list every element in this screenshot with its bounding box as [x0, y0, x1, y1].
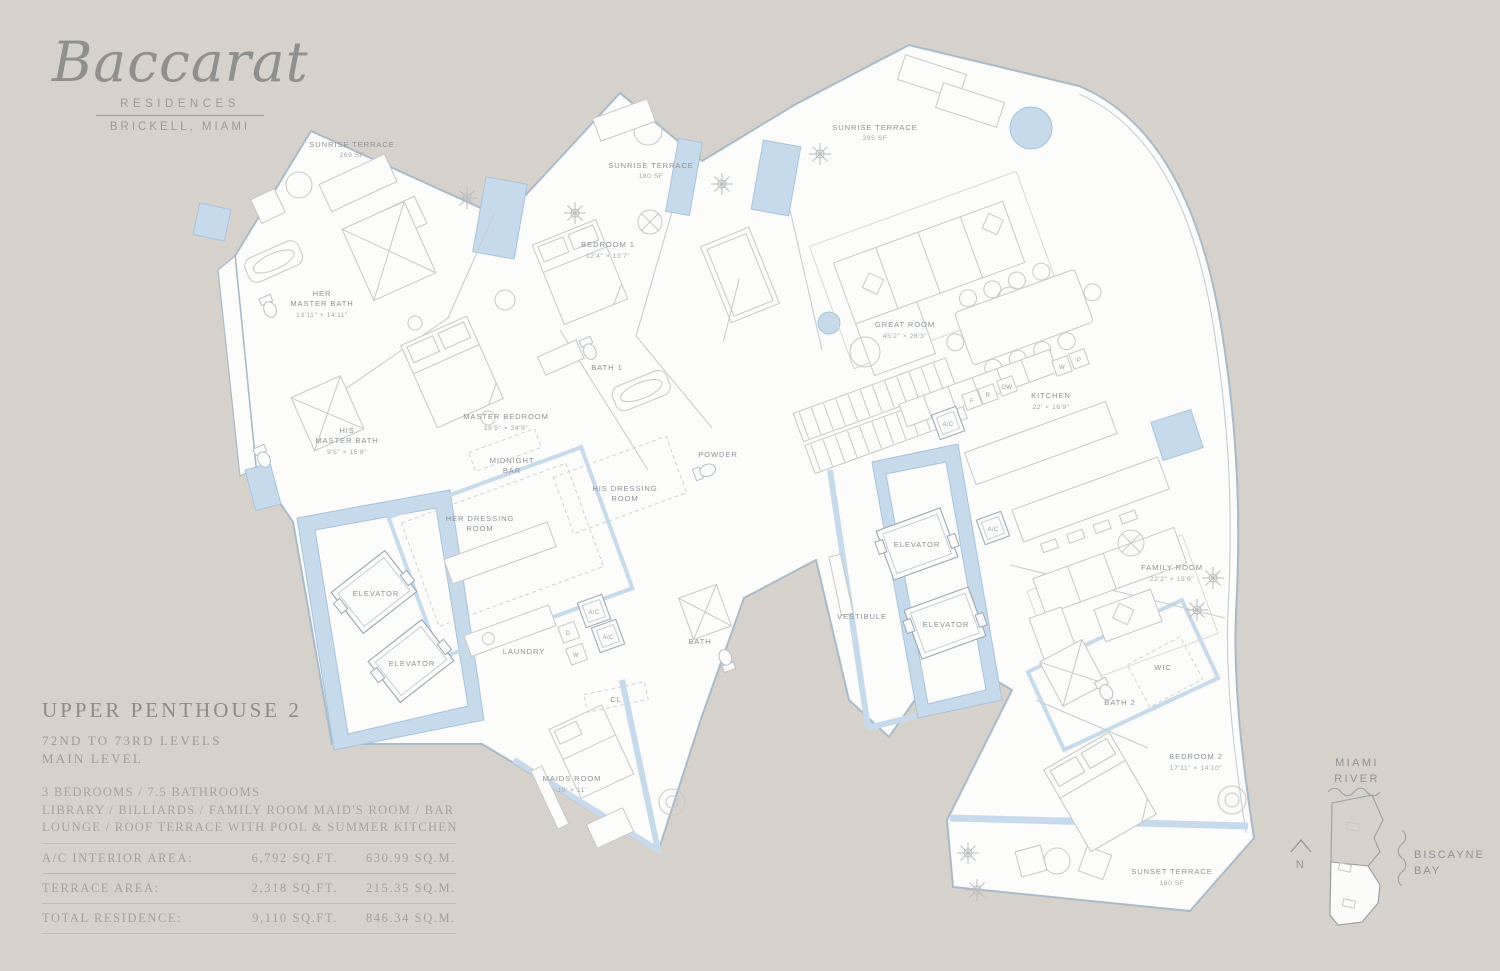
- area-label: TERRACE AREA:: [42, 881, 220, 896]
- level-line-1: 72ND TO 73RD LEVELS: [42, 732, 472, 750]
- room-size-sunrise-terrace-b: 180 SF: [639, 173, 664, 180]
- room-label-midnight-bar-1: MIDNIGHT: [490, 456, 535, 465]
- dryer-label: D: [566, 631, 571, 637]
- room-label-his-dressing-1: HIS DRESSING: [592, 484, 657, 493]
- area-sqm: 630.99 SQ.M.: [338, 851, 456, 866]
- room-dims-her-master-bath: 13'11" × 14'11": [296, 312, 348, 319]
- room-label-laundry: LAUNDRY: [503, 647, 545, 656]
- washer-label: W: [573, 653, 579, 659]
- room-size-sunrise-terrace-c: 395 SF: [863, 135, 888, 142]
- pantry-label: P: [1077, 358, 1081, 364]
- ac-label: A/C: [988, 527, 999, 533]
- room-label-sunrise-terrace-b: SUNRISE TERRACE: [608, 161, 694, 170]
- area-label: TOTAL RESIDENCE:: [42, 911, 220, 926]
- room-label-bedroom-1: BEDROOM 1: [581, 240, 635, 249]
- room-dims-bedroom-1: 12'4" × 13'7": [586, 253, 630, 260]
- area-sqft: 9,110 SQ.FT.: [220, 911, 338, 926]
- room-size-sunset-terrace: 180 SF: [1160, 880, 1185, 887]
- feature-line-1: 3 BEDROOMS / 7.5 BATHROOMS: [42, 784, 472, 802]
- room-label-her-master-bath-2: MASTER BATH: [290, 299, 353, 308]
- biscayne-bay-label-2: BAY: [1414, 865, 1441, 877]
- title-block: UPPER PENTHOUSE 2 72ND TO 73RD LEVELS MA…: [42, 698, 472, 837]
- feature-line-2: LIBRARY / BILLIARDS / FAMILY ROOM MAID'S…: [42, 802, 472, 820]
- room-label-his-dressing-2: ROOM: [611, 494, 638, 503]
- feature-line-3: LOUNGE / ROOF TERRACE WITH POOL & SUMMER…: [42, 819, 472, 837]
- room-label-kitchen: KITCHEN: [1031, 391, 1071, 400]
- table-row: TOTAL RESIDENCE: 9,110 SQ.FT. 846.34 SQ.…: [42, 903, 456, 933]
- room-dims-master-bedroom: 16'5" × 24'9": [484, 425, 528, 432]
- room-label-bath-1: BATH 1: [591, 363, 622, 372]
- page-title: UPPER PENTHOUSE 2: [42, 698, 472, 723]
- ac-label: A/C: [603, 635, 614, 641]
- room-dims-maids-room: 10' × 11': [557, 787, 586, 794]
- miami-river-label-1: MIAMI: [1335, 757, 1379, 769]
- room-label-sunrise-terrace-c: SUNRISE TERRACE: [832, 123, 918, 132]
- room-label-his-master-bath-2: MASTER BATH: [315, 436, 378, 445]
- areas-table: A/C INTERIOR AREA: 6,792 SQ.FT. 630.99 S…: [42, 843, 456, 934]
- area-sqft: 2,318 SQ.FT.: [220, 881, 338, 896]
- miami-river-label-2: RIVER: [1334, 773, 1380, 785]
- range-label: R: [986, 393, 991, 399]
- level-lines: 72ND TO 73RD LEVELS MAIN LEVEL: [42, 732, 472, 769]
- table-row: A/C INTERIOR AREA: 6,792 SQ.FT. 630.99 S…: [42, 843, 456, 873]
- room-dims-family-room: 22'2" × 15'6": [1150, 576, 1194, 583]
- room-label-powder: POWDER: [698, 450, 738, 459]
- room-label-sunrise-terrace-a: SUNRISE TERRACE: [309, 140, 395, 149]
- area-label: A/C INTERIOR AREA:: [42, 851, 220, 866]
- room-label-bedroom-2: BEDROOM 2: [1169, 752, 1223, 761]
- room-label-elevator-1: ELEVATOR: [353, 589, 399, 598]
- room-label-her-master-bath-1: HER: [313, 289, 332, 298]
- penthouse-highlight: [1330, 862, 1380, 925]
- room-dims-his-master-bath: 9'5" × 15'8": [327, 449, 367, 456]
- room-label-vestibule: VESTIBULE: [837, 612, 887, 621]
- room-label-bath-2: BATH 2: [1104, 698, 1135, 707]
- floorplan-page: Baccarat RESIDENCES BRICKELL, MIAMI: [0, 0, 1500, 971]
- room-label-elevator-2: ELEVATOR: [389, 659, 435, 668]
- level-line-2: MAIN LEVEL: [42, 750, 472, 768]
- north-label: N: [1296, 859, 1306, 871]
- room-label-her-dressing-2: ROOM: [466, 524, 493, 533]
- room-label-master-bedroom: MASTER BEDROOM: [463, 412, 549, 421]
- room-label-sunset-terrace: SUNSET TERRACE: [1131, 867, 1213, 876]
- room-label-wic: WIC: [1154, 663, 1171, 672]
- feature-lines: 3 BEDROOMS / 7.5 BATHROOMS LIBRARY / BIL…: [42, 784, 472, 837]
- ac-label: A/C: [589, 610, 600, 616]
- area-sqm: 846.34 SQ.M.: [338, 911, 456, 926]
- room-dims-bedroom-2: 17'11" × 14'10": [1170, 765, 1222, 772]
- room-label-great-room: GREAT ROOM: [875, 320, 935, 329]
- room-label-elevator-3: ELEVATOR: [894, 540, 940, 549]
- dishwasher-label: DW: [1002, 385, 1013, 391]
- room-label-midnight-bar-2: BAR: [503, 466, 521, 475]
- ac-label: A/C: [943, 422, 954, 428]
- room-label-maids-room: MAIDS ROOM: [543, 774, 602, 783]
- room-label-closet: CL: [610, 695, 622, 704]
- room-dims-kitchen: 22' × 16'9": [1032, 404, 1069, 411]
- room-size-sunrise-terrace-a: 269 SF: [340, 152, 365, 159]
- area-sqft: 6,792 SQ.FT.: [220, 851, 338, 866]
- room-label-family-room: FAMILY ROOM: [1141, 563, 1203, 572]
- table-row: TERRACE AREA: 2,318 SQ.FT. 215.35 SQ.M.: [42, 873, 456, 903]
- fridge-label: F: [970, 399, 974, 405]
- room-label-elevator-4: ELEVATOR: [923, 620, 969, 629]
- key-map: MIAMI RIVER N BISCAYNE BAY: [1291, 757, 1485, 925]
- north-compass: N: [1291, 840, 1311, 871]
- area-sqm: 215.35 SQ.M.: [338, 881, 456, 896]
- biscayne-bay-label-1: BISCAYNE: [1414, 849, 1485, 861]
- bay-wave-icon: [1398, 830, 1406, 886]
- room-label-his-master-bath-1: HIS: [339, 426, 354, 435]
- w-label: W: [1059, 365, 1065, 371]
- room-label-her-dressing-1: HER DRESSING: [446, 514, 515, 523]
- room-dims-great-room: 45'2" × 26'3": [883, 333, 927, 340]
- room-label-bath: BATH: [688, 637, 711, 646]
